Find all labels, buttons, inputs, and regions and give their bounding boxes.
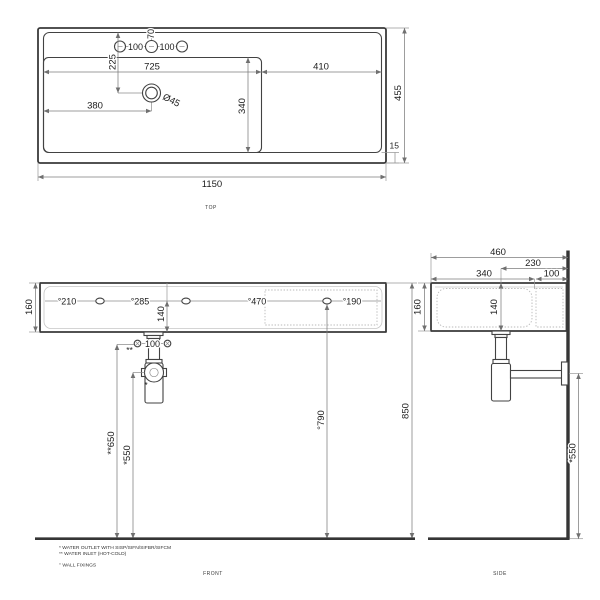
trap-wall-pipe (511, 371, 563, 379)
dim-label-drain-to-wall: 230 (525, 258, 541, 269)
dim-label-drain-offset-left: 380 (87, 101, 103, 112)
sheet-background (0, 0, 600, 600)
wall-fixing-hole (182, 298, 190, 304)
dim-label-deck-width: 410 (313, 62, 329, 73)
dim-label-drain-depth: 140 (489, 299, 500, 315)
dim-label-fixing-offset-left: °210 (58, 297, 77, 307)
dim-label-basin-depth: 340 (476, 269, 492, 280)
wall-fixing-hole (323, 298, 331, 304)
dim-label-tap-inset: 70 (146, 29, 156, 39)
dim-label-overall-width: 1150 (202, 179, 222, 190)
view-caption-top: TOP (205, 205, 217, 211)
dim-label-outlet-height: *550 (122, 445, 133, 465)
pipe-escutcheon (562, 362, 569, 385)
technical-drawing-sheet: 70 100 100 225 725 410 380 Ø45 340 15 45… (0, 0, 600, 600)
view-caption-side: SIDE (493, 571, 507, 577)
dim-label-basin-width: 725 (144, 62, 160, 73)
legend-item-water-outlet: * WATER OUTLET WITH SISP/SIFN/SIFBR/SIFC… (59, 545, 171, 551)
inlet-marker: ** (126, 345, 133, 355)
dim-label-bottom-gap: 15 (390, 141, 400, 151)
dim-label-tap-spacing-right: 100 (159, 42, 174, 52)
dim-label-inlet-height: **650 (106, 431, 117, 454)
drawing-canvas: 70 100 100 225 725 410 380 Ø45 340 15 45… (0, 0, 600, 600)
dim-label-overall-depth: 455 (393, 85, 404, 101)
dim-label-outlet-height: *550 (568, 443, 579, 463)
dim-label-height: 160 (413, 299, 424, 315)
dim-label-drain-offset-top: 225 (108, 54, 119, 70)
dim-label-basin-depth: 340 (237, 98, 248, 114)
legend-item-water-inlet: ** WATER INLET (HOT-COLD) (59, 551, 127, 557)
dim-label-inlet-spacing: 100 (145, 339, 160, 349)
dim-label-overall-depth: 460 (490, 247, 506, 258)
trap-nut (493, 360, 509, 364)
dim-label-tap-spacing-left: 100 (128, 42, 143, 52)
view-caption-front: FRONT (203, 571, 223, 577)
legend-item-wall-fixings: ° WALL FIXINGS (59, 563, 97, 569)
dim-label-fixing-spacing-mid: °285 (131, 297, 150, 307)
dim-label-height: 160 (24, 299, 35, 315)
trap-bottle (492, 364, 511, 402)
wall-fixing-hole (96, 298, 104, 304)
dim-label-back-ledge: 100 (544, 269, 560, 280)
dim-label-total-height: 850 (401, 403, 412, 419)
dim-label-fixing-offset-right: °190 (343, 297, 362, 307)
dim-label-fixing-height: °790 (316, 410, 327, 430)
dim-label-drain-depth: 140 (156, 306, 167, 322)
dim-label-fixing-spacing-right: °470 (248, 297, 267, 307)
trap-tailpipe (496, 338, 507, 360)
